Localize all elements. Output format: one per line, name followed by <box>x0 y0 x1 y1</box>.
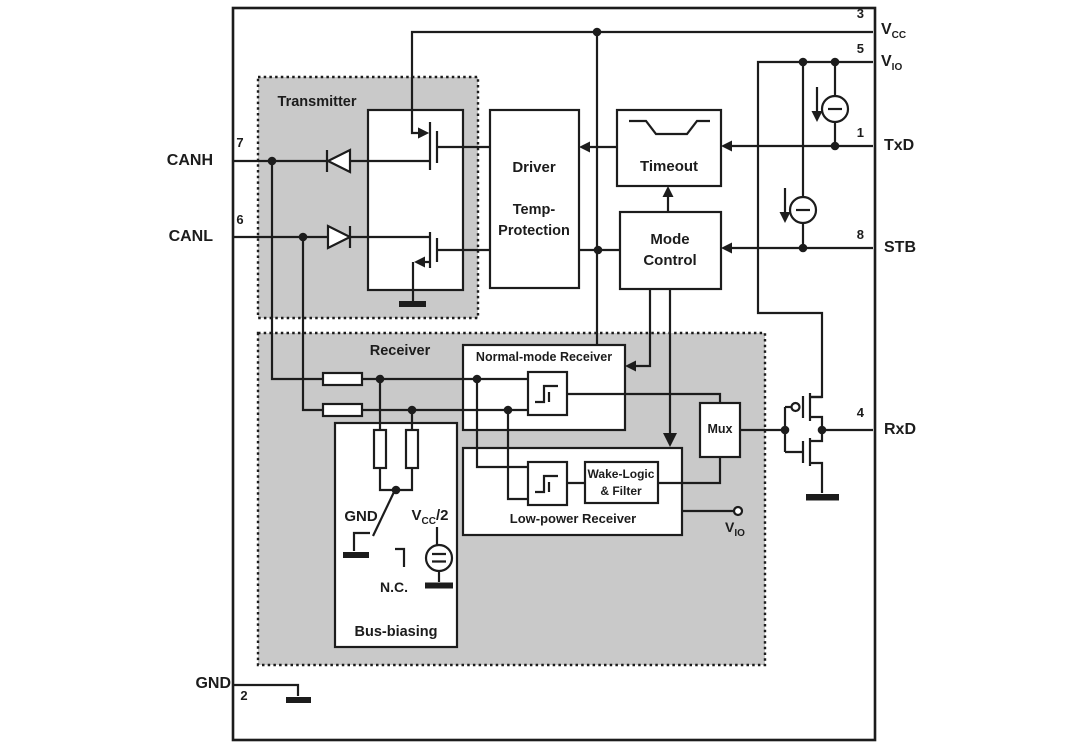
resistor-canh <box>323 373 362 385</box>
pin-number-vcc: 3 <box>840 7 864 21</box>
ground-icon-dc-source <box>425 583 453 589</box>
vcc-pin-label-main: V <box>881 21 892 38</box>
stb-current-source-icon <box>780 188 817 223</box>
vio-terminal-sub: IO <box>734 528 745 539</box>
wake-logic-line2: & Filter <box>588 483 655 500</box>
mode-control-label: Mode Control <box>643 229 696 271</box>
normal-mode-receiver-label: Normal-mode Receiver <box>476 351 612 365</box>
transmitter-label: Transmitter <box>278 95 357 111</box>
vcc-pin-label: VCC <box>881 21 906 41</box>
ground-icon-inverter <box>806 494 839 501</box>
pin-number-stb: 8 <box>840 228 864 242</box>
mode-control-line1: Mode <box>643 229 696 250</box>
pin-number-gnd: 2 <box>236 689 252 703</box>
ground-icon-bias-switch <box>343 552 369 558</box>
vio-terminal-icon <box>734 507 742 515</box>
nmos-icon <box>785 430 839 501</box>
hysteresis-comparator-low-power <box>528 462 567 505</box>
rxd-pin-label: RxD <box>884 421 916 439</box>
receiver-label: Receiver <box>370 344 430 360</box>
resistor-canl <box>323 404 362 416</box>
transmitter-output-stage-box <box>368 110 463 290</box>
pmos-icon <box>785 393 822 430</box>
pin-number-txd: 1 <box>840 126 864 140</box>
vio-pin-label: VIO <box>881 53 902 73</box>
bias-vcc-half-sub: CC <box>422 516 436 527</box>
stb-pin-label: STB <box>884 239 916 257</box>
canl-pin-label: CANL <box>150 228 213 246</box>
bias-nc-label: N.C. <box>380 580 408 595</box>
canh-pin-label: CANH <box>150 152 213 170</box>
driver-title: Driver <box>512 160 555 177</box>
pin-number-canl: 6 <box>230 213 250 227</box>
resistor-bias-right <box>406 430 418 468</box>
bus-biasing-label: Bus-biasing <box>355 625 438 641</box>
hysteresis-comparator-normal <box>528 372 567 415</box>
vio-terminal-main: V <box>725 519 734 535</box>
vio-pin-label-main: V <box>881 53 892 70</box>
can-transceiver-block-diagram: Transmitter Receiver Driver Temp- Protec… <box>0 0 1080 745</box>
ground-icon-pin2 <box>286 697 311 703</box>
mode-control-line2: Control <box>643 250 696 271</box>
vio-terminal-label: VIO <box>725 520 745 539</box>
bias-vcc-half-main: V <box>412 507 422 524</box>
schematic-canvas <box>0 0 1080 745</box>
vcc-pin-label-sub: CC <box>892 30 906 41</box>
wake-logic-line1: Wake-Logic <box>588 466 655 483</box>
gnd-pin-label: GND <box>168 675 231 693</box>
bias-vcc-half-label: VCC/2 <box>412 508 449 527</box>
pin-number-vio: 5 <box>840 42 864 56</box>
timeout-label: Timeout <box>640 159 698 176</box>
pin-number-canh: 7 <box>230 136 250 150</box>
driver-temp-line1: Temp- <box>498 200 570 221</box>
driver-temp-line2: Protection <box>498 221 570 242</box>
low-power-receiver-label: Low-power Receiver <box>510 512 636 526</box>
wake-logic-filter-label: Wake-Logic & Filter <box>588 466 655 500</box>
pin-number-rxd: 4 <box>840 406 864 420</box>
mux-label: Mux <box>708 423 733 437</box>
bias-gnd-label: GND <box>344 509 377 526</box>
resistor-bias-left <box>374 430 386 468</box>
ground-icon-transmitter <box>399 301 426 307</box>
driver-temp-protection-label: Temp- Protection <box>498 200 570 242</box>
vio-pin-label-sub: IO <box>892 62 903 73</box>
bias-vcc-half-suffix: /2 <box>436 507 449 524</box>
txd-pin-label: TxD <box>884 137 914 155</box>
driver-box <box>490 110 579 288</box>
txd-current-source-icon <box>812 87 849 122</box>
